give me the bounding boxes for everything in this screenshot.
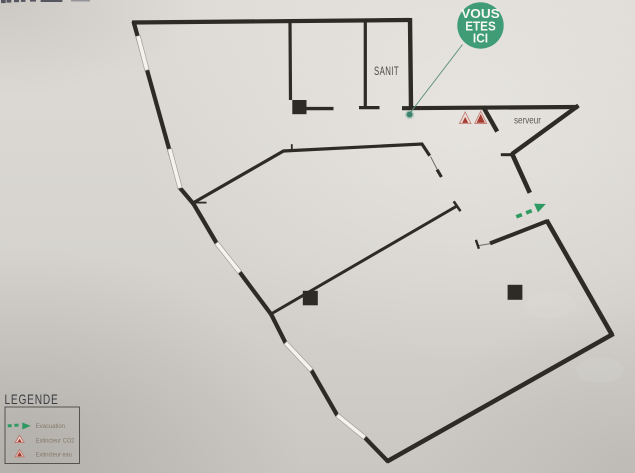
svg-text:ICI: ICI <box>473 31 488 46</box>
svg-text:Extincteur eau: Extincteur eau <box>36 451 72 458</box>
svg-text:Extincteur CO2: Extincteur CO2 <box>36 437 75 444</box>
svg-text:Evacuation: Evacuation <box>36 423 65 430</box>
svg-text:SANIT: SANIT <box>374 64 399 78</box>
svg-text:LEGENDE: LEGENDE <box>5 392 59 407</box>
svg-text:serveur: serveur <box>514 116 542 127</box>
